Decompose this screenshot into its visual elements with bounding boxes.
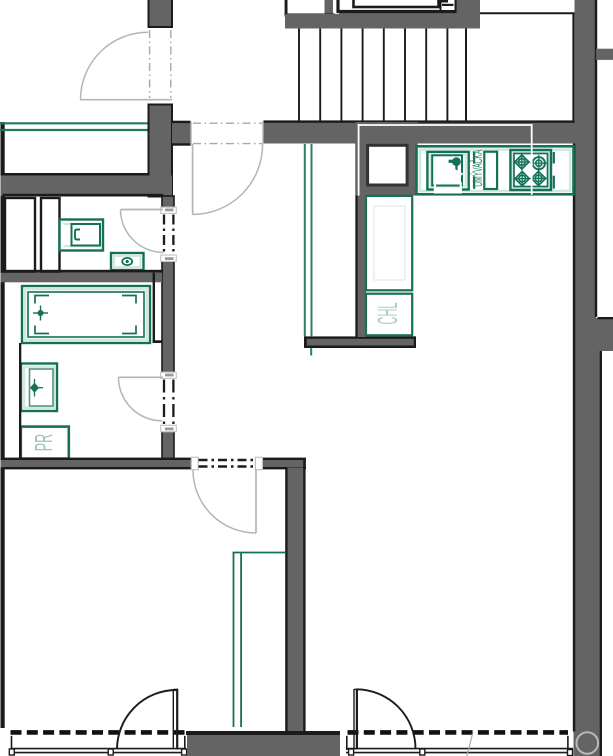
svg-text:PR: PR [29, 434, 58, 452]
svg-text:CHL: CHL [371, 303, 403, 325]
